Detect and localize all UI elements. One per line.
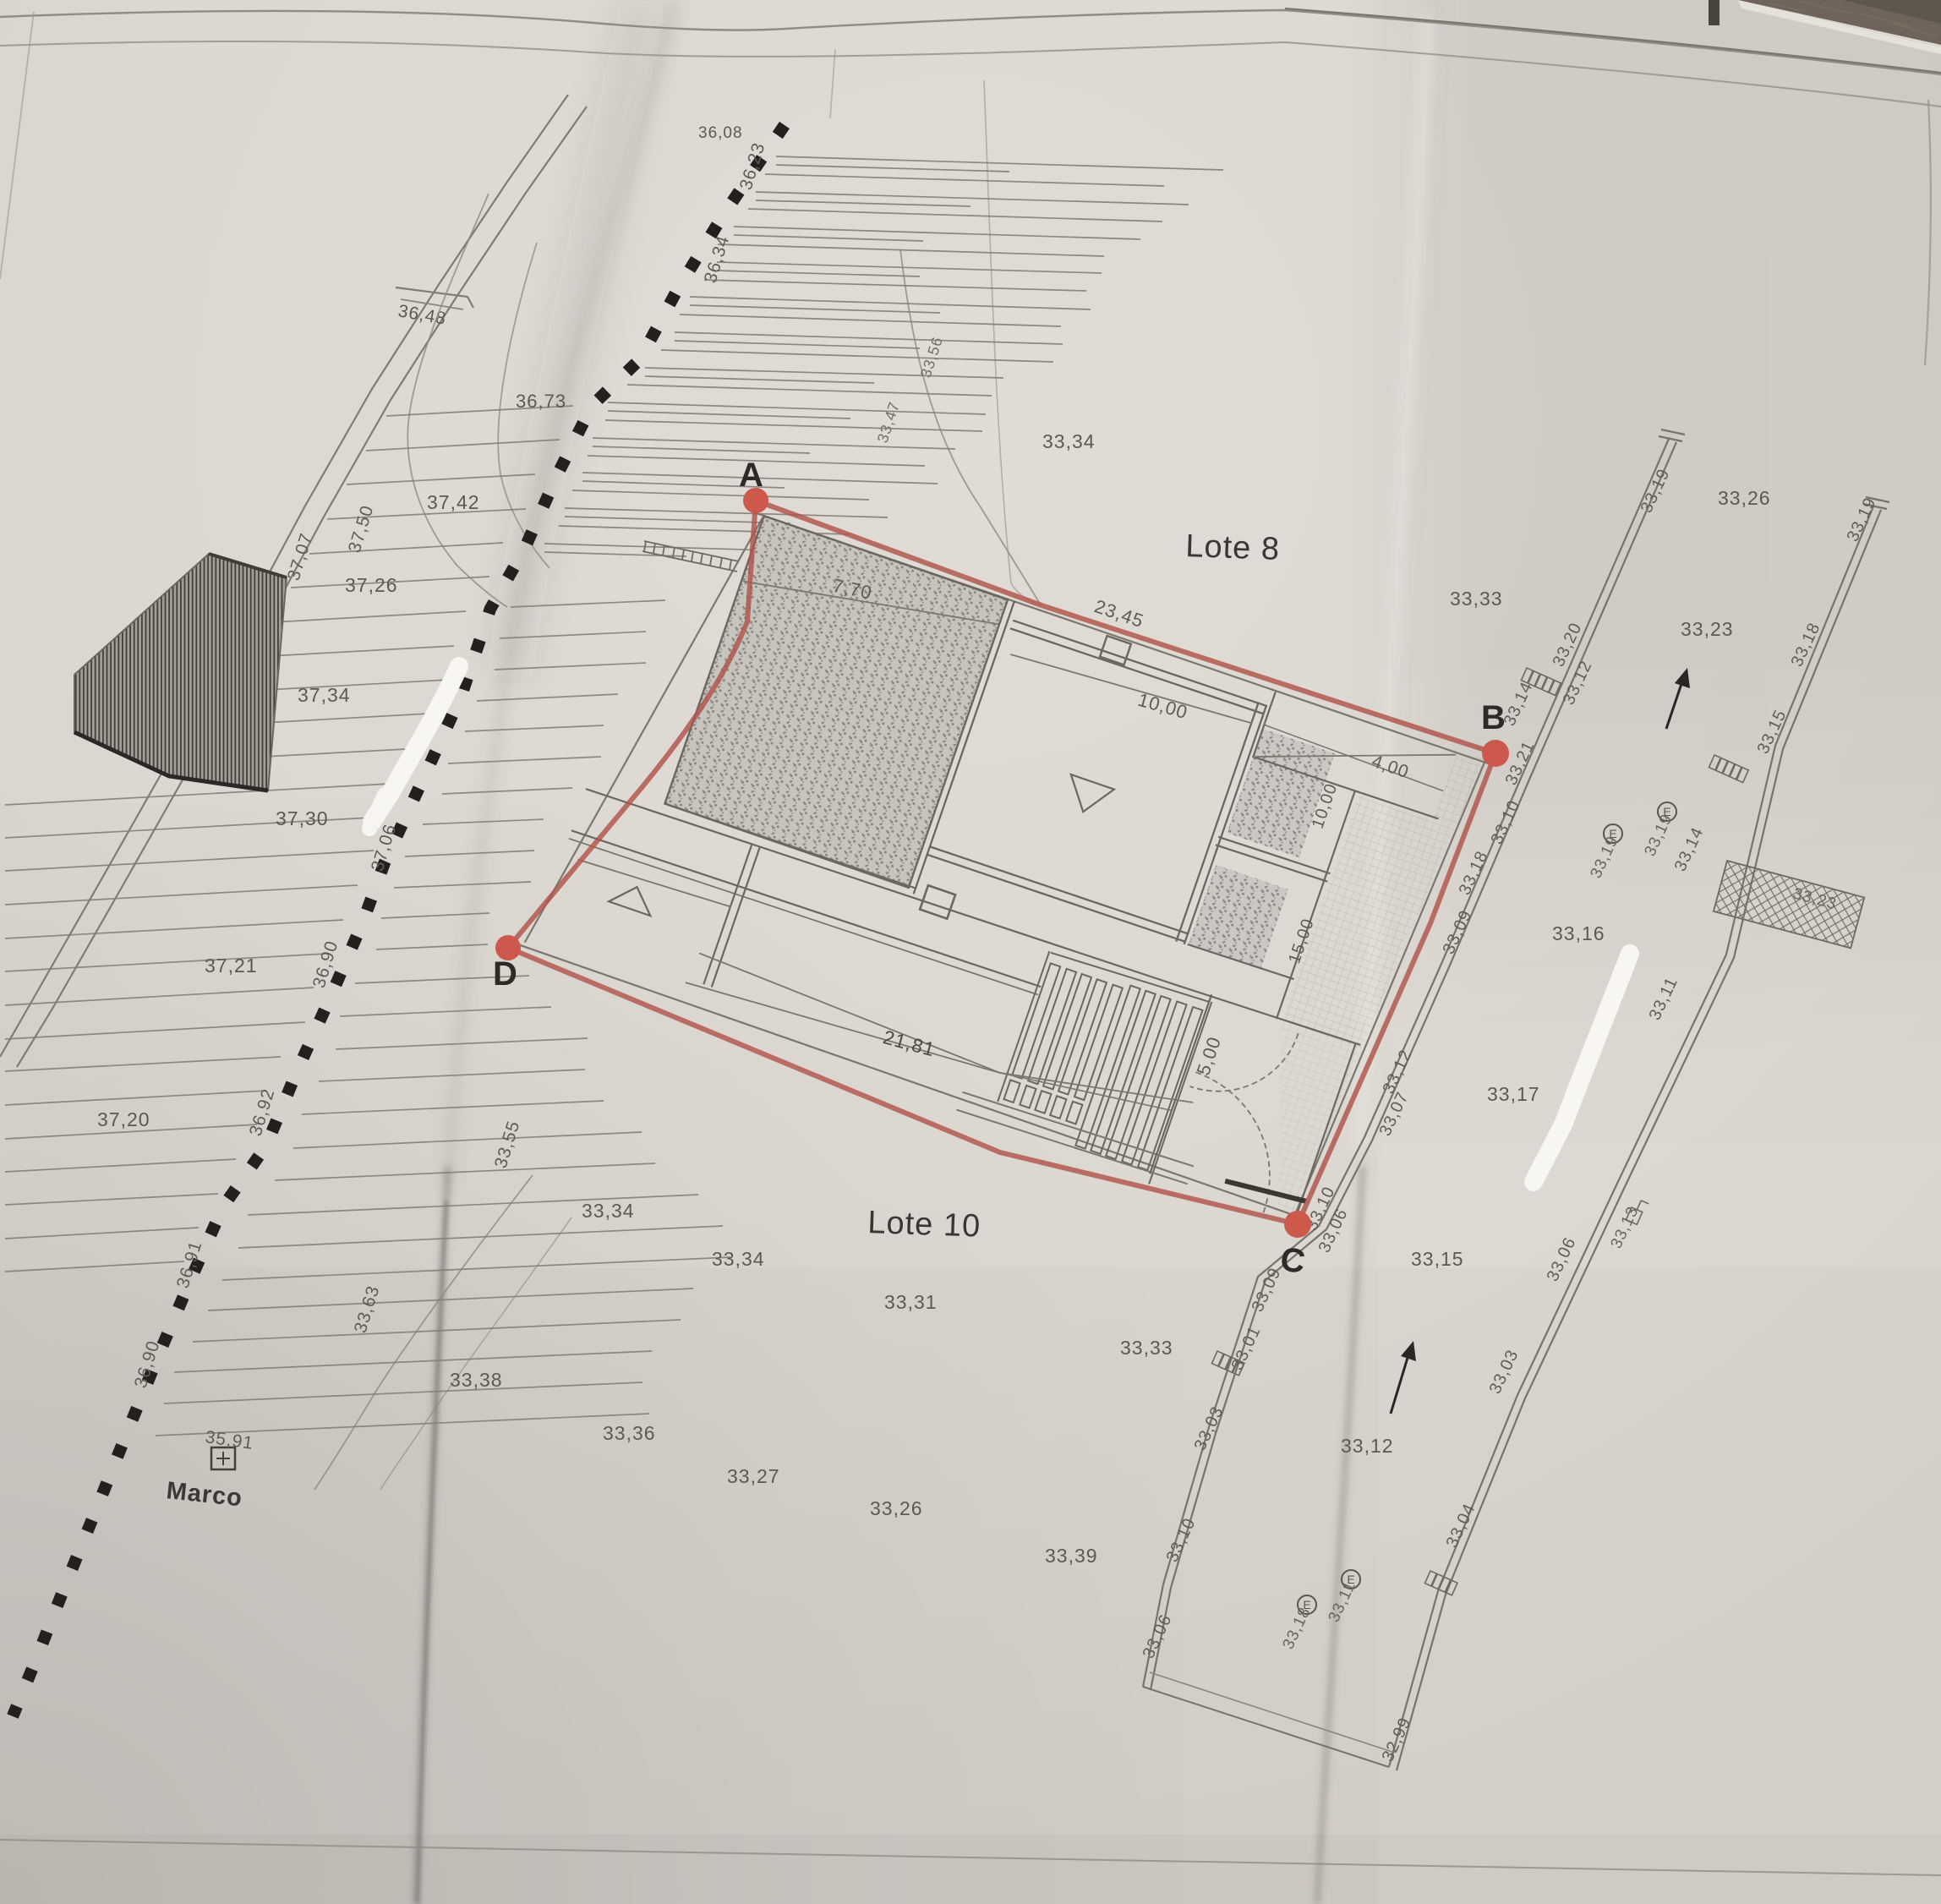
- svg-text:33,34: 33,34: [1042, 430, 1096, 452]
- svg-text:33,23: 33,23: [1681, 618, 1734, 640]
- svg-text:33,34: 33,34: [712, 1248, 765, 1270]
- svg-text:37,42: 37,42: [427, 491, 480, 513]
- svg-text:Lote 10: Lote 10: [867, 1205, 981, 1245]
- svg-text:33,26: 33,26: [1718, 487, 1771, 509]
- svg-text:B: B: [1481, 699, 1506, 736]
- svg-text:33,12: 33,12: [1341, 1435, 1394, 1457]
- svg-text:37,21: 37,21: [205, 955, 258, 977]
- svg-text:33,27: 33,27: [727, 1465, 780, 1487]
- svg-text:36,08: 36,08: [698, 124, 743, 142]
- svg-text:Lote 8: Lote 8: [1185, 528, 1281, 567]
- svg-text:33,26: 33,26: [870, 1497, 923, 1519]
- svg-text:37,30: 37,30: [276, 807, 329, 829]
- svg-text:D: D: [493, 955, 518, 993]
- svg-text:36,73: 36,73: [516, 391, 566, 412]
- svg-text:33,17: 33,17: [1487, 1083, 1540, 1105]
- svg-text:33,31: 33,31: [884, 1291, 938, 1313]
- svg-text:37,26: 37,26: [345, 574, 398, 596]
- svg-text:33,34: 33,34: [582, 1200, 635, 1222]
- svg-text:37,20: 37,20: [97, 1108, 150, 1130]
- svg-text:C: C: [1278, 1240, 1309, 1281]
- svg-text:33,33: 33,33: [1120, 1337, 1173, 1359]
- svg-text:33,16: 33,16: [1552, 922, 1605, 944]
- svg-text:33,33: 33,33: [1450, 588, 1503, 610]
- svg-text:33,38: 33,38: [450, 1369, 503, 1391]
- svg-text:37,34: 37,34: [298, 684, 351, 706]
- svg-text:33,36: 33,36: [603, 1422, 656, 1444]
- svg-text:A: A: [739, 457, 764, 494]
- svg-text:33,39: 33,39: [1045, 1545, 1098, 1567]
- svg-text:33,15: 33,15: [1411, 1248, 1464, 1270]
